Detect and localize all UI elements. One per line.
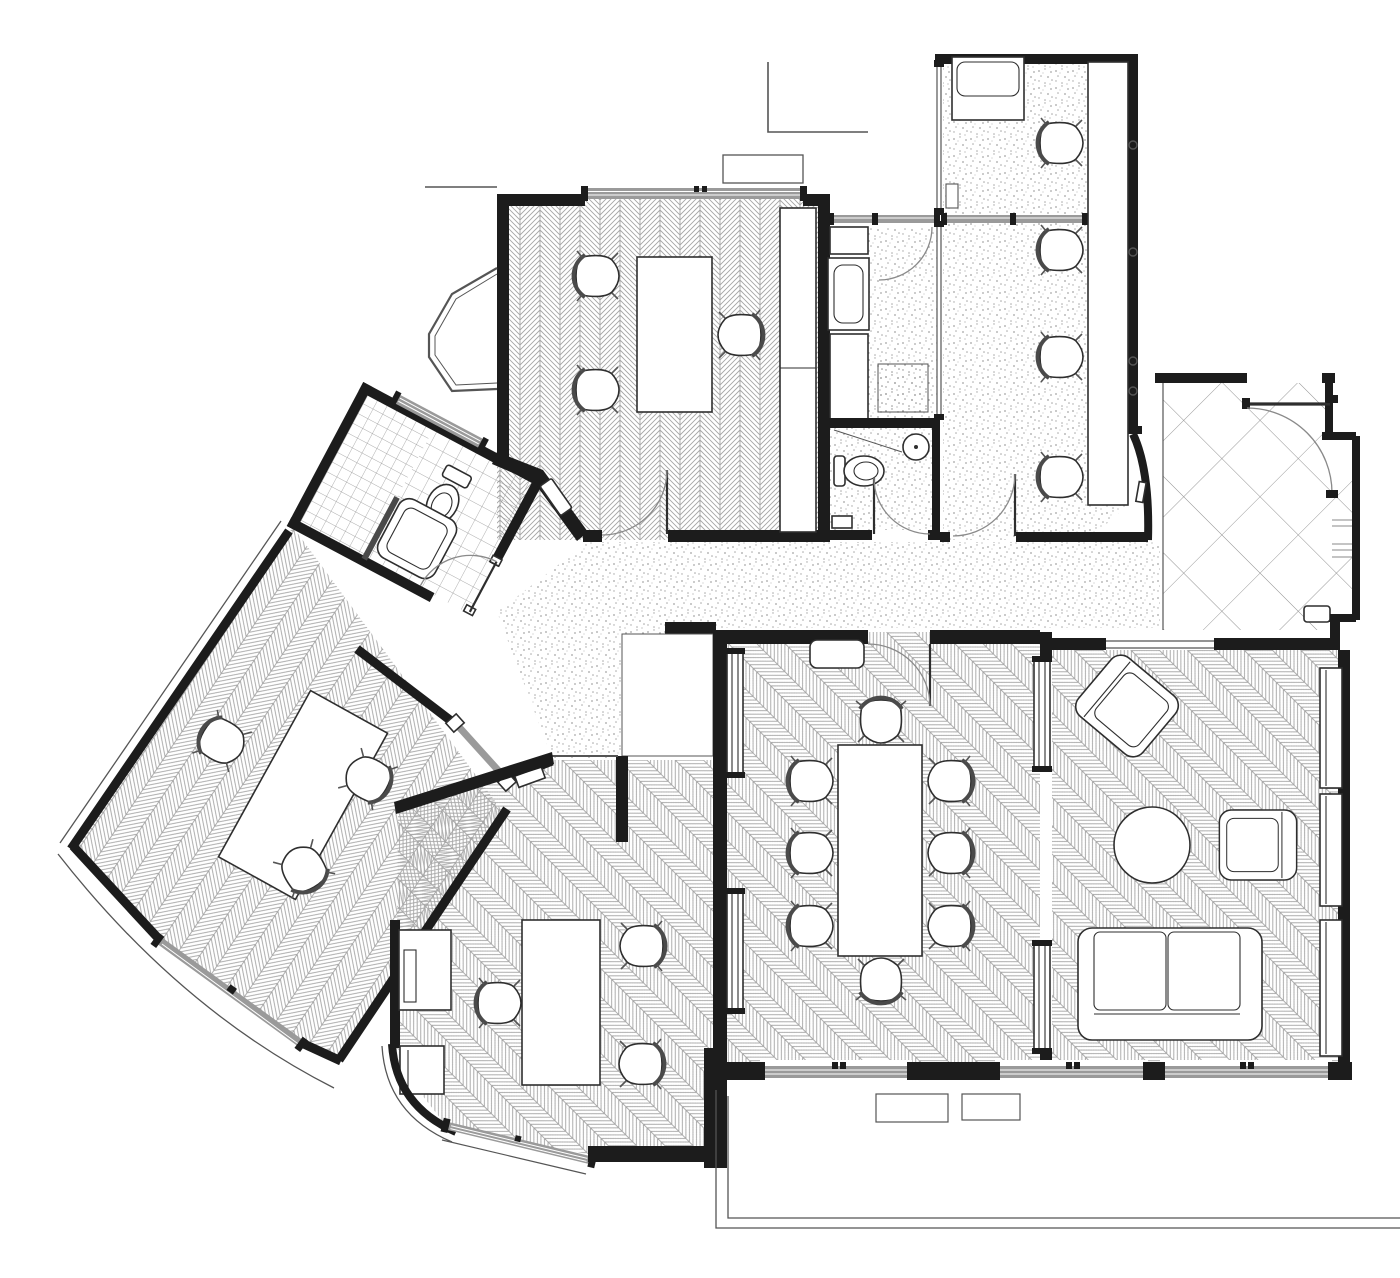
desk	[637, 257, 712, 412]
wall-counter	[1088, 62, 1128, 505]
property-line	[768, 62, 868, 132]
task-chair	[928, 756, 973, 806]
task-chair	[619, 1039, 664, 1089]
task-chair	[718, 310, 763, 360]
radiator	[725, 648, 745, 778]
tall-cabinet	[780, 208, 816, 532]
planter	[962, 1094, 1020, 1120]
task-chair	[1038, 118, 1083, 168]
task-chair	[1038, 225, 1083, 275]
cabinet	[399, 930, 451, 1010]
task-chair	[928, 828, 973, 878]
bay-window	[429, 268, 497, 391]
window-band	[758, 1060, 914, 1082]
wall-item	[946, 184, 958, 208]
task-chair	[856, 698, 906, 743]
sink-unit	[828, 258, 869, 330]
task-chair	[788, 828, 833, 878]
terrace-outline	[716, 1090, 1400, 1228]
radiator	[1032, 656, 1052, 772]
task-chair	[620, 921, 665, 971]
daybed	[952, 57, 1024, 120]
armchair	[1219, 810, 1296, 880]
floor-plan-svg	[0, 0, 1400, 1278]
planter	[876, 1094, 948, 1122]
shelving-unit	[1320, 920, 1342, 1056]
task-chair	[788, 756, 833, 806]
wc-shelf	[832, 516, 852, 528]
round-coffee-table	[1114, 807, 1190, 883]
task-chair	[1038, 332, 1083, 382]
appliance-square	[878, 364, 928, 412]
toilet	[834, 456, 884, 486]
window-band	[993, 1060, 1150, 1082]
task-chair	[856, 958, 906, 1003]
task-chair	[476, 978, 521, 1028]
window-band	[1158, 1060, 1335, 1082]
task-chair	[574, 365, 619, 415]
two-seat-sofa	[1078, 928, 1262, 1040]
shelving-unit	[1320, 794, 1342, 906]
conference-table	[838, 745, 922, 956]
sideboard	[810, 640, 864, 668]
counter	[830, 227, 868, 254]
glazed-partition-left	[937, 62, 941, 214]
task-chair	[1038, 452, 1083, 502]
task-chair	[928, 901, 973, 951]
glazed-partition-right	[937, 225, 941, 420]
terrace-outline-inner	[728, 1096, 1400, 1218]
planter-top	[723, 155, 803, 183]
desk	[522, 920, 600, 1085]
task-chair	[788, 901, 833, 951]
floor-vestibule	[1163, 383, 1352, 630]
counter	[830, 334, 868, 420]
radiator	[1032, 940, 1052, 1054]
task-chair	[574, 251, 619, 301]
floor-plan-page	[0, 0, 1400, 1278]
shelving-unit	[1320, 668, 1342, 788]
door-post	[616, 756, 628, 842]
exterior-top	[425, 62, 868, 187]
wall-console	[1304, 606, 1330, 622]
radiator	[725, 888, 745, 1014]
window-band-top	[581, 186, 807, 201]
south-facade	[713, 1060, 1400, 1228]
threshold-vestibule	[1106, 641, 1214, 648]
glazed-partition-top	[828, 213, 940, 225]
closet	[622, 634, 713, 756]
round-washbasin	[903, 434, 929, 460]
